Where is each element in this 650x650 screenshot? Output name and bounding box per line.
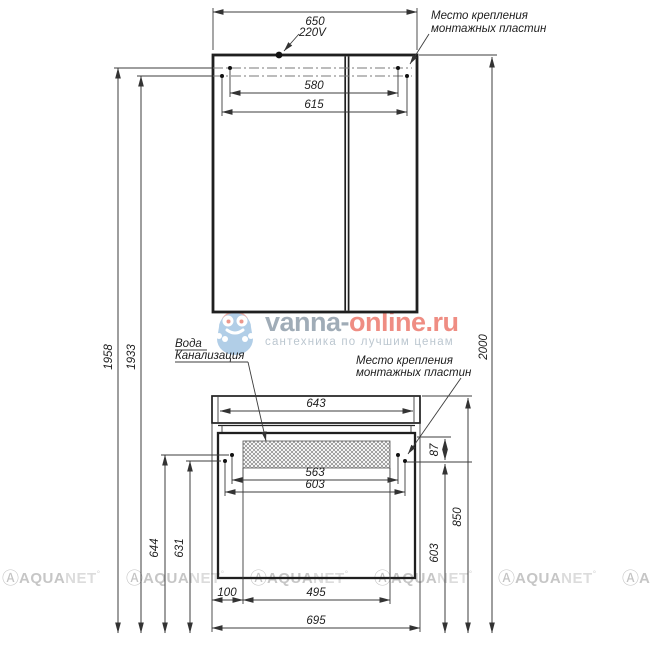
dim-height-mount-lower: 1933 (126, 344, 138, 370)
label-mount-bottom-line2: монтажных пластин (356, 367, 472, 379)
base-dimensions: 643 563 603 Вода Канализация Место крепл… (149, 338, 472, 633)
dim-height-total: 2000 (478, 334, 490, 361)
label-water-line1: Вода (175, 338, 202, 350)
label-mount-top-line2: монтажных пластин (431, 23, 547, 35)
mirror-dimensions: 650 580 615 220V Место крепления монтажн… (213, 8, 547, 116)
dim-base-mount-upper-height: 644 (149, 538, 161, 557)
power-outlet-point (276, 52, 283, 59)
dim-base-mount-height: 603 (429, 543, 441, 563)
dim-height-mount-upper: 1958 (103, 344, 115, 370)
drawing-page: vanna-online.ru сантехника по лучшим цен… (0, 0, 650, 650)
dim-drain-offset: 100 (217, 587, 237, 599)
leader-water (248, 362, 266, 441)
dim-counter-inner: 643 (306, 398, 326, 410)
dim-base-width: 695 (306, 615, 326, 627)
dim-plate-drop: 87 (429, 443, 441, 456)
label-mount-bottom-line1: Место крепления (356, 355, 453, 367)
dim-base-mount-lower-height: 631 (174, 538, 186, 557)
dim-base-mount-inner: 563 (305, 467, 325, 479)
leader-mount-bottom (408, 378, 461, 454)
dim-counter-height: 850 (452, 507, 464, 527)
label-water-line2: Канализация (175, 350, 244, 362)
leader-power (284, 34, 299, 51)
dim-base-mount-outer: 603 (305, 479, 325, 491)
technical-drawing: 650 580 615 220V Место крепления монтажн… (0, 0, 650, 650)
label-mount-top-line1: Место крепления (431, 10, 528, 22)
leader-mount-top (410, 34, 429, 64)
dim-drain-span: 495 (306, 587, 326, 599)
dim-mirror-mount-inner: 580 (304, 80, 324, 92)
label-power: 220V (298, 27, 327, 39)
dim-mirror-mount-outer: 615 (304, 99, 324, 111)
mounting-plate-zone (243, 441, 390, 468)
